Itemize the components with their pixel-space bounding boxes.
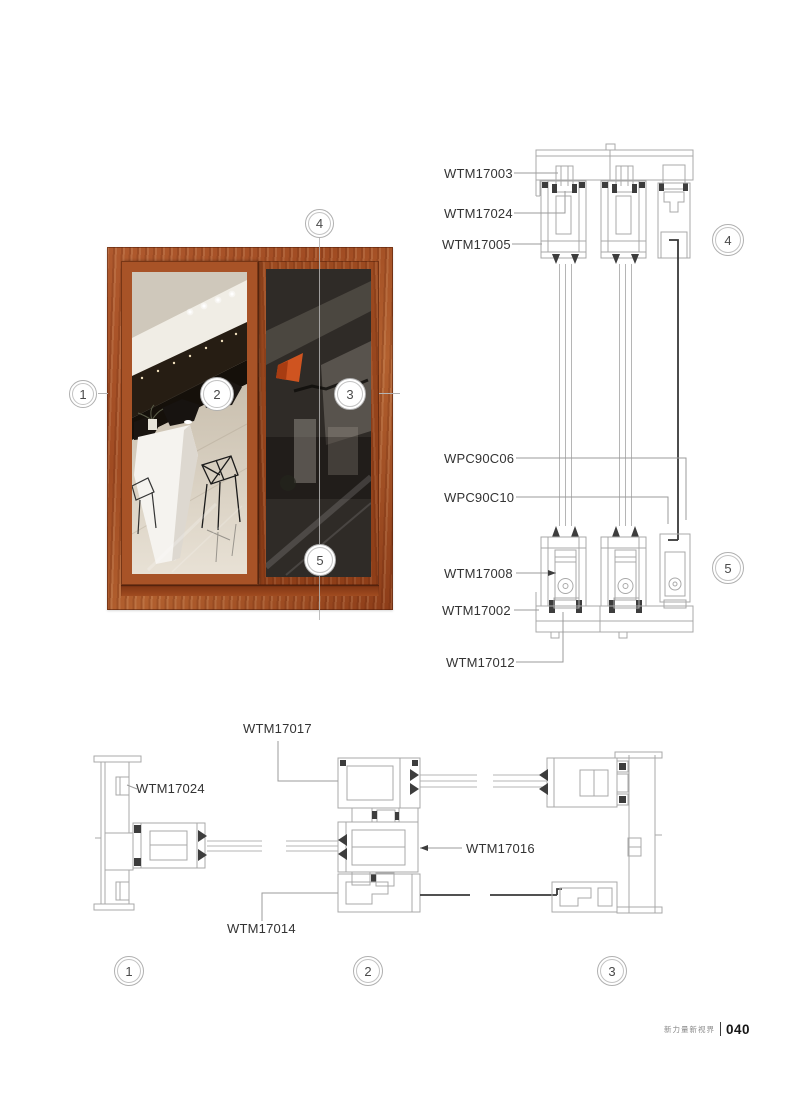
callout-4: 4 — [305, 209, 334, 238]
product-photo — [107, 247, 393, 610]
sash-top-left — [541, 166, 586, 264]
section-cut-line-vertical — [319, 238, 320, 544]
part-label: WTM17012 — [446, 655, 515, 670]
brand-slogan: 新力量新视界 — [664, 1024, 715, 1035]
section-marker-2-number: 2 — [364, 964, 371, 979]
section-marker-5-number: 5 — [724, 561, 731, 576]
horizontal-section-drawing — [80, 715, 680, 950]
section-marker-2: 2 — [353, 956, 383, 986]
screen-track-top — [658, 165, 690, 258]
screen-sash-section — [552, 882, 617, 912]
catalog-page: 1 2 3 4 5 — [0, 0, 800, 1093]
callout-2-number: 2 — [213, 387, 220, 402]
interlock-stack — [338, 758, 420, 912]
callout-5: 5 — [304, 544, 336, 576]
part-label: WTM17008 — [444, 566, 513, 581]
screen-sash-bottom — [660, 534, 690, 602]
callout-5-number: 5 — [316, 553, 323, 568]
sill-track-profile — [536, 592, 693, 638]
section-marker-4-number: 4 — [724, 233, 731, 248]
sliding-track — [121, 585, 379, 596]
part-label: WTM17014 — [227, 921, 296, 936]
section-cut-line-vertical-lower — [319, 576, 320, 620]
glass-pane — [132, 272, 247, 574]
sash-section-right — [539, 758, 628, 807]
section-cut-line-horizontal-left — [98, 393, 108, 394]
page-number: 040 — [726, 1022, 750, 1037]
part-label: WTM17003 — [444, 166, 513, 181]
glass-panes — [560, 264, 632, 526]
callout-3: 3 — [334, 378, 366, 410]
section-marker-3: 3 — [597, 956, 627, 986]
part-label: WPC90C06 — [444, 451, 514, 466]
part-label: WTM17024 — [444, 206, 513, 221]
callout-4-number: 4 — [316, 216, 323, 231]
callout-1: 1 — [69, 380, 97, 408]
part-label: WTM17016 — [466, 841, 535, 856]
section-marker-4: 4 — [712, 224, 744, 256]
sash-section-left — [133, 823, 207, 868]
page-footer: 新力量新视界 040 — [664, 1019, 750, 1039]
part-label: WTM17005 — [442, 237, 511, 252]
right-jamb-profile — [615, 752, 662, 913]
sash-top-right — [601, 166, 646, 264]
callout-3-number: 3 — [346, 387, 353, 402]
section-marker-1: 1 — [114, 956, 144, 986]
part-label: WTM17017 — [243, 721, 312, 736]
section-marker-5: 5 — [712, 552, 744, 584]
callout-2: 2 — [200, 377, 234, 411]
footer-divider — [720, 1022, 721, 1036]
screen-mesh-line — [420, 889, 562, 895]
left-jamb-profile — [94, 756, 141, 910]
interior-scene — [132, 272, 247, 574]
glass-sash-panel — [121, 261, 258, 585]
section-marker-3-number: 3 — [608, 964, 615, 979]
callout-1-number: 1 — [79, 387, 86, 402]
section-marker-1-number: 1 — [125, 964, 132, 979]
part-label: WTM17024 — [136, 781, 205, 796]
part-label: WTM17002 — [442, 603, 511, 618]
part-label: WPC90C10 — [444, 490, 514, 505]
